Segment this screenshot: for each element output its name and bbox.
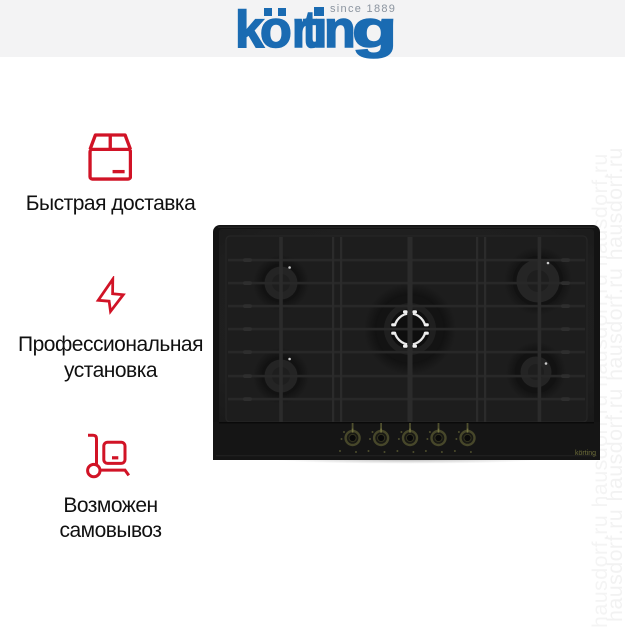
svg-text:körting: körting <box>575 450 596 457</box>
